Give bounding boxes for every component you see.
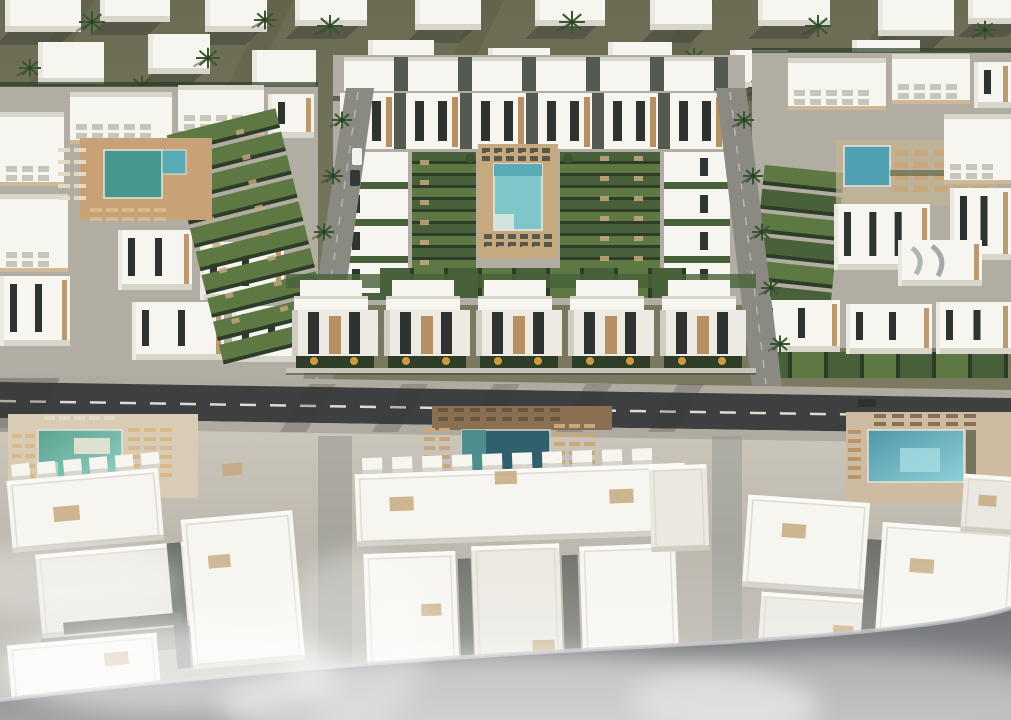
car-white (352, 148, 362, 165)
center-courtyard-block (333, 55, 745, 305)
haze-overlay (0, 540, 1011, 720)
wall-shadow (286, 373, 756, 375)
render-canvas (0, 0, 1011, 720)
hedge-line (752, 48, 1011, 53)
swim-up-ledge (74, 438, 110, 454)
aerial-compound-render (0, 0, 1011, 720)
pool-step (494, 214, 514, 230)
left-cluster-pool (104, 150, 162, 198)
center-cluster-townhouses-north (340, 57, 728, 149)
left-cluster-pool-spa (162, 150, 186, 174)
pool-shallow (900, 448, 940, 472)
left-courtyard-block (0, 82, 332, 388)
hedge-line (0, 82, 318, 87)
car-dark (858, 399, 876, 407)
car-dark (350, 170, 360, 186)
right-courtyard-block (748, 48, 1011, 378)
townhouse-row (286, 274, 756, 375)
right-cluster-pool (844, 146, 890, 186)
front-wall (286, 368, 756, 373)
pool-deep-end (494, 164, 542, 176)
townhouse-units (292, 280, 746, 368)
